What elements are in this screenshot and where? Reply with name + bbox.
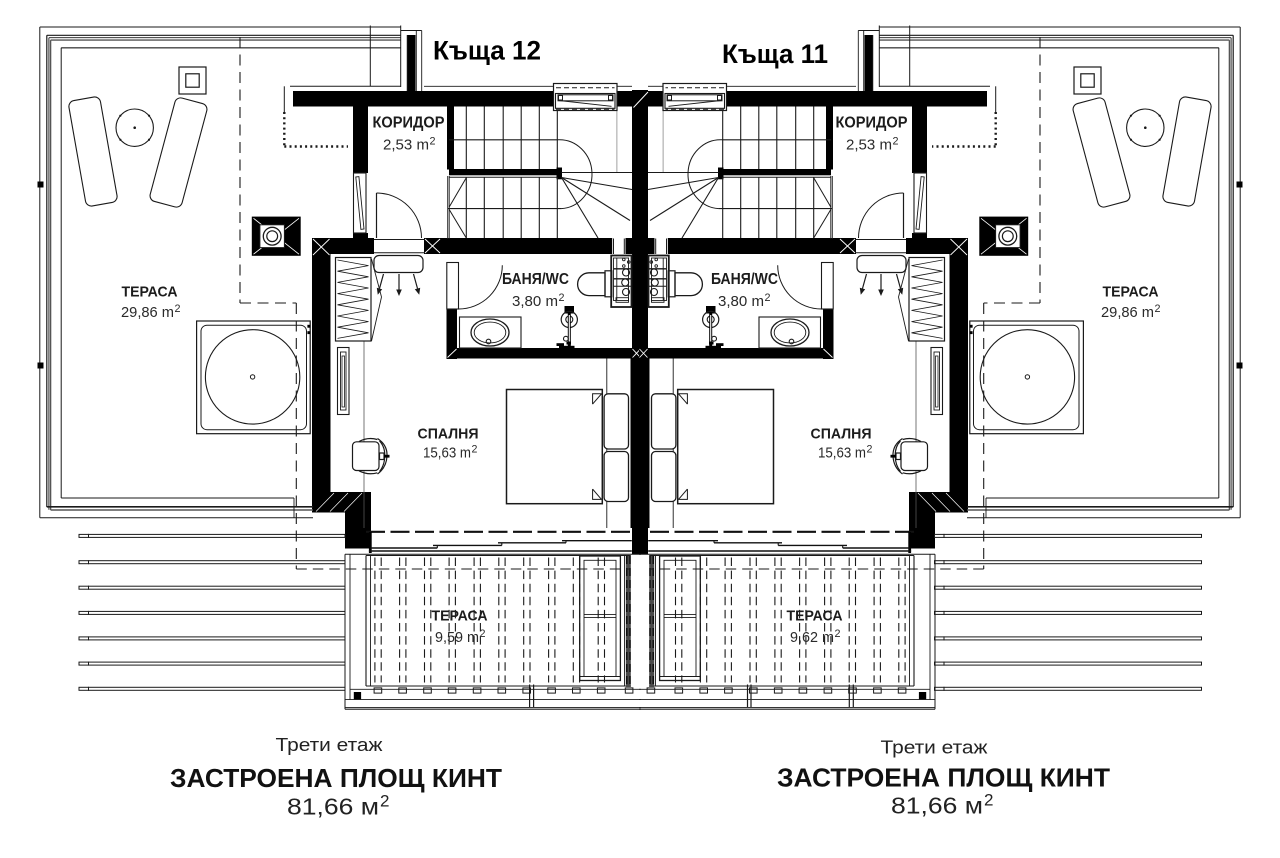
svg-text:2: 2 — [559, 292, 565, 304]
svg-text:15,63 m: 15,63 m — [818, 446, 866, 462]
svg-text:2,53 m: 2,53 m — [383, 137, 429, 154]
svg-text:2: 2 — [430, 136, 436, 148]
svg-text:81,66 м: 81,66 м — [891, 793, 983, 819]
svg-text:9,59 m: 9,59 m — [435, 629, 479, 646]
svg-text:2: 2 — [480, 628, 486, 640]
svg-text:29,86 m: 29,86 m — [121, 304, 174, 321]
svg-text:9,62 m: 9,62 m — [790, 629, 834, 646]
svg-text:2: 2 — [984, 791, 993, 810]
svg-text:БАНЯ/WC: БАНЯ/WC — [502, 271, 569, 288]
svg-text:Трети етаж: Трети етаж — [276, 734, 384, 755]
svg-text:2: 2 — [1155, 303, 1161, 315]
svg-text:ТЕРАСА: ТЕРАСА — [1103, 284, 1159, 301]
svg-text:КОРИДОР: КОРИДОР — [373, 115, 445, 132]
svg-text:ТЕРАСА: ТЕРАСА — [122, 284, 178, 301]
svg-text:29,86 m: 29,86 m — [1101, 304, 1154, 321]
svg-text:2: 2 — [765, 292, 771, 304]
svg-text:3,80 m: 3,80 m — [718, 293, 764, 310]
svg-text:2: 2 — [380, 792, 389, 811]
svg-text:ТЕРАСА: ТЕРАСА — [787, 608, 843, 625]
svg-text:3,80 m: 3,80 m — [512, 293, 558, 310]
svg-text:БАНЯ/WC: БАНЯ/WC — [711, 271, 778, 288]
svg-text:2: 2 — [175, 303, 181, 315]
svg-text:2: 2 — [472, 444, 478, 456]
svg-text:КОРИДОР: КОРИДОР — [836, 115, 908, 132]
svg-text:Къща 12: Къща 12 — [433, 36, 541, 66]
svg-text:81,66 м: 81,66 м — [287, 794, 379, 820]
svg-text:15,63 m: 15,63 m — [423, 446, 471, 462]
svg-text:ЗАСТРОЕНА ПЛОЩ КИНТ: ЗАСТРОЕНА ПЛОЩ КИНТ — [777, 765, 1110, 793]
svg-text:2: 2 — [835, 628, 841, 640]
svg-text:ЗАСТРОЕНА ПЛОЩ КИНТ: ЗАСТРОЕНА ПЛОЩ КИНТ — [170, 765, 502, 793]
svg-text:Къща 11: Къща 11 — [722, 39, 828, 69]
svg-text:СПАЛНЯ: СПАЛНЯ — [418, 426, 479, 443]
svg-text:2,53 m: 2,53 m — [846, 137, 892, 154]
svg-text:2: 2 — [893, 136, 899, 148]
svg-text:2: 2 — [867, 444, 873, 456]
svg-text:Трети етаж: Трети етаж — [881, 737, 989, 758]
svg-text:ТЕРАСА: ТЕРАСА — [432, 608, 488, 625]
svg-text:СПАЛНЯ: СПАЛНЯ — [811, 426, 872, 443]
